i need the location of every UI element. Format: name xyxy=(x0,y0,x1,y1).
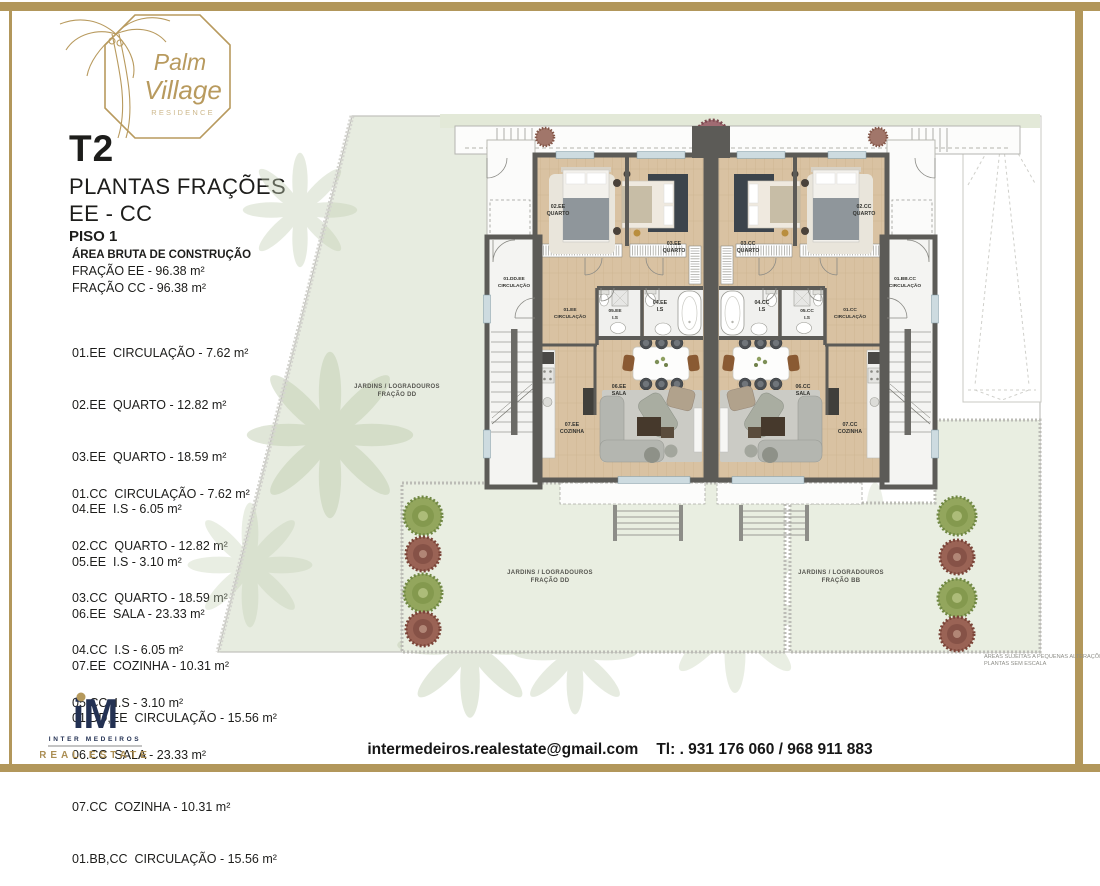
inter-medeiros-logo: iM INTER MEDEIROS REAL ESTATE xyxy=(40,684,150,766)
room-label-cc-is04: 04.CC xyxy=(754,300,769,306)
contact-bar: intermedeiros.realestate@gmail.com Tl: .… xyxy=(250,741,990,759)
center-pier xyxy=(692,126,730,158)
tree-icon xyxy=(938,579,976,617)
room-label-ee-circ-dd: 01.DD.EE xyxy=(503,276,525,282)
room-label-cc-q02-line2: QUARTO xyxy=(853,211,876,217)
tree-icon xyxy=(406,537,440,571)
room-label-ee-q03-line2: QUARTO xyxy=(663,248,686,254)
room-label-ee-is04-line2: I.S xyxy=(657,307,664,313)
garden-label-bb: JARDINS / LOGRADOUROS xyxy=(798,570,884,576)
palm-shadow-icon xyxy=(243,153,357,267)
tree-icon xyxy=(404,497,442,535)
room-label-ee-cozinha: 07.EE xyxy=(565,422,580,428)
planter-bush-icon xyxy=(536,128,554,146)
room-label-ee-circ-line2: CIRCULAÇÃO xyxy=(554,313,587,320)
room-label-ee-q03: 03.EE xyxy=(667,241,682,247)
room-label-ee-q02-line2: QUARTO xyxy=(547,211,570,217)
room-label-cc-circ: 01.CC xyxy=(843,307,857,313)
room-label-ee-circ: 01.EE xyxy=(563,307,577,313)
room-label-cc-q02: 02.CC xyxy=(856,204,871,210)
plan-disclaimer-line2: PLANTAS SEM ESCALA xyxy=(984,661,1047,667)
garden-label-bb-line2: FRAÇÃO BB xyxy=(822,577,861,584)
room-label-ee-q02: 02.EE xyxy=(551,204,566,210)
contact-phone: Tl: . 931 176 060 / 968 911 883 xyxy=(656,741,872,759)
brand-name: INTER MEDEIROS xyxy=(49,736,141,743)
room-label-cc-sala-line2: SALA xyxy=(796,391,811,397)
garden-label-left-line2: FRAÇÃO DD xyxy=(378,391,417,398)
tree-icon xyxy=(938,497,976,535)
room-label-ee-cozinha-line2: COZINHA xyxy=(560,429,584,435)
room-label-cc-q03-line2: QUARTO xyxy=(737,248,760,254)
room-label-cc-is05-line2: I.S xyxy=(804,315,811,321)
garden-label-left: JARDINS / LOGRADOUROS xyxy=(354,384,440,390)
floor-plan: 02.EE QUARTO 03.EE QUARTO 01.DD.EE CIRCU… xyxy=(0,0,1100,778)
room-label-ee-is04: 04.EE xyxy=(653,300,668,306)
tree-icon xyxy=(406,612,440,646)
garden-label-dd-line2: FRAÇÃO DD xyxy=(531,577,570,584)
tree-icon xyxy=(404,574,442,612)
contact-email: intermedeiros.realestate@gmail.com xyxy=(367,741,638,759)
tree-icon xyxy=(940,617,974,651)
garden-plot-dd xyxy=(402,483,785,652)
room-label-cc-circ-bb: 01.BB.CC xyxy=(894,276,916,282)
plan-disclaimer: ÁREAS SUJEITAS A PEQUENAS ALTERAÇÕES xyxy=(984,653,1100,660)
unit-ee xyxy=(484,140,712,541)
planter-bush-icon xyxy=(869,128,887,146)
room-label-cc-sala: 06.CC xyxy=(795,384,810,390)
parcel-right xyxy=(963,116,1041,402)
room-label-ee-sala-line2: SALA xyxy=(612,391,627,397)
room-label-cc-is05: 05.CC xyxy=(800,308,814,314)
room-label-cc-is04-line2: I.S xyxy=(759,307,766,313)
room-label-cc-circ-line2: CIRCULAÇÃO xyxy=(834,313,867,320)
room-label-cc-cozinha: 07.CC xyxy=(842,422,857,428)
room-label-ee-sala: 06.EE xyxy=(612,384,627,390)
garden-label-dd: JARDINS / LOGRADOUROS xyxy=(507,570,593,576)
room-label-cc-q03: 03.CC xyxy=(740,241,755,247)
room-label-ee-circ-dd-line2: CIRCULAÇÃO xyxy=(498,282,531,289)
list-item: 07.CC COZINHA - 10.31 m² xyxy=(72,799,277,816)
brand-dot xyxy=(77,693,86,702)
room-label-cc-circ-bb-line2: CIRCULAÇÃO xyxy=(889,282,922,289)
tree-icon xyxy=(940,540,974,574)
brand-sub: REAL ESTATE xyxy=(40,750,150,761)
list-item: 01.BB,CC CIRCULAÇÃO - 15.56 m² xyxy=(72,851,277,868)
room-label-cc-cozinha-line2: COZINHA xyxy=(838,429,862,435)
room-label-ee-is05: 05.EE xyxy=(608,308,622,314)
unit-cc xyxy=(711,140,939,541)
room-label-ee-is05-line2: I.S xyxy=(612,315,619,321)
party-wall xyxy=(704,155,719,480)
